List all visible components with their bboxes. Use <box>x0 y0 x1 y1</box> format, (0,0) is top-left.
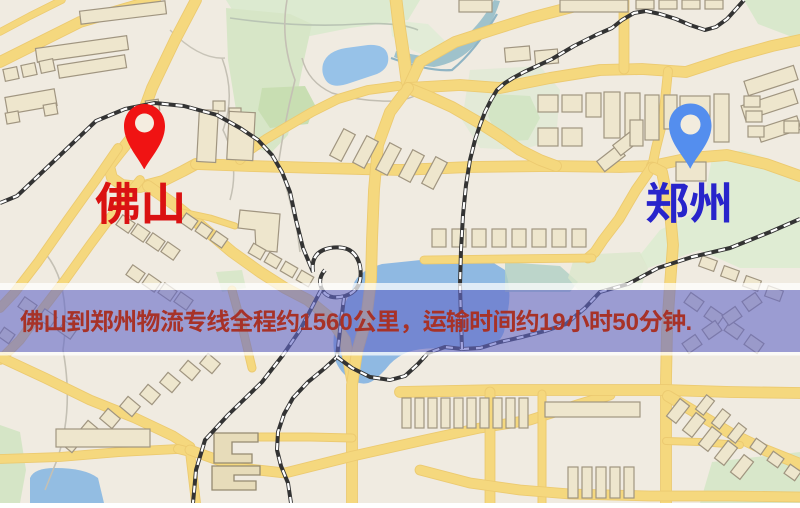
svg-text:.: . <box>686 309 693 336</box>
svg-text:1: 1 <box>539 309 552 336</box>
svg-text:5: 5 <box>612 309 625 336</box>
svg-text:6: 6 <box>326 309 339 336</box>
svg-text:0: 0 <box>339 309 352 336</box>
svg-text:5: 5 <box>313 309 326 336</box>
svg-text:1: 1 <box>299 309 312 336</box>
svg-text:0: 0 <box>626 309 639 336</box>
svg-text:9: 9 <box>552 309 565 336</box>
